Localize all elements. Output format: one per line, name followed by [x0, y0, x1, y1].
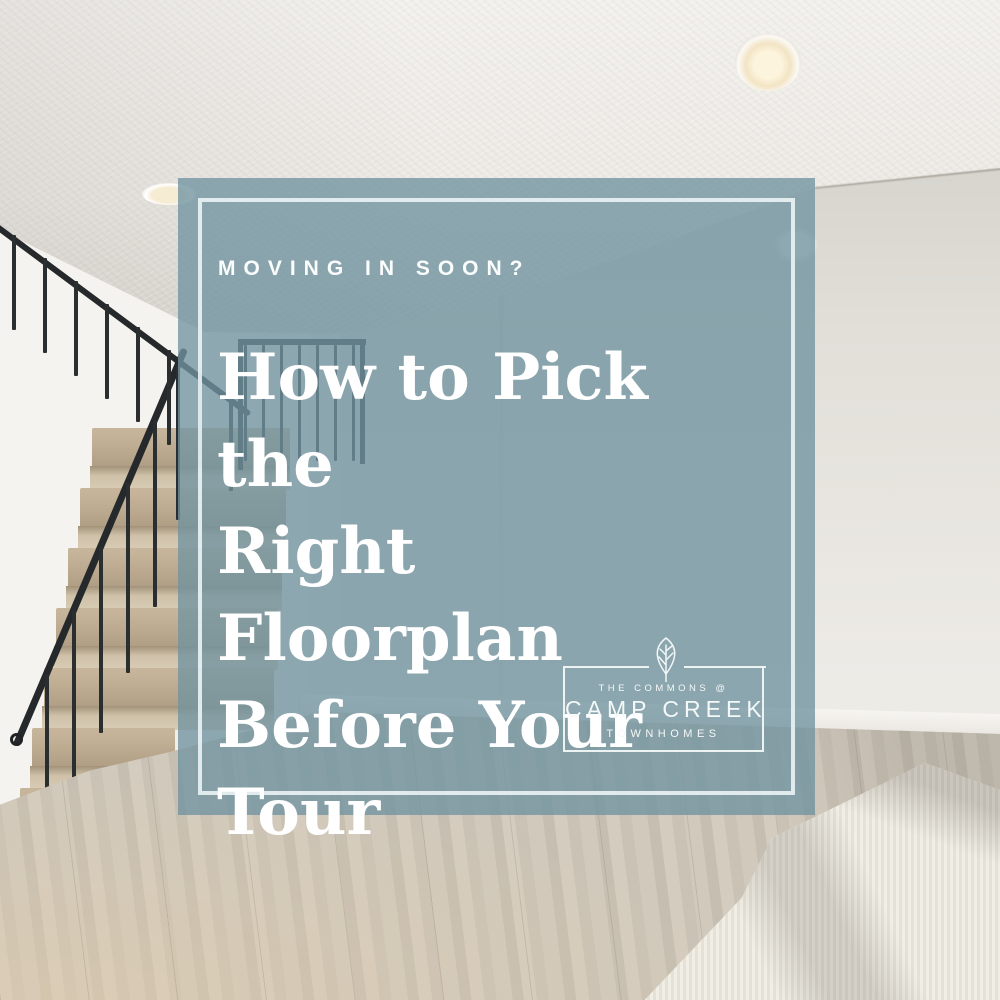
- headline-line-4: Tour: [217, 769, 777, 856]
- stair-baluster: [126, 483, 130, 673]
- logo-bottom-text: TOWNHOMES: [565, 728, 762, 740]
- social-graphic: MOVING IN SOON? How to Pick the Right Fl…: [0, 0, 1000, 1000]
- stair-baluster: [99, 547, 103, 733]
- logo-name-text: CAMP CREEK: [565, 696, 762, 723]
- headline: How to Pick the Right Floorplan Before Y…: [217, 334, 777, 856]
- overlay-panel: MOVING IN SOON? How to Pick the Right Fl…: [178, 178, 815, 815]
- stair-baluster: [74, 281, 78, 376]
- stair-baluster: [105, 304, 109, 399]
- stair-baluster: [136, 327, 140, 422]
- stair-baluster: [167, 350, 171, 445]
- leaf-tree-icon: [648, 636, 684, 682]
- eyebrow-text: MOVING IN SOON?: [218, 257, 531, 281]
- stair-baluster: [153, 420, 157, 607]
- logo-box: THE COMMONS @ CAMP CREEK TOWNHOMES: [563, 666, 764, 752]
- headline-line-2: Right Floorplan: [217, 508, 777, 682]
- logo-border-segment: [565, 666, 649, 668]
- stair-baluster: [12, 235, 16, 330]
- logo-border-segment: [684, 666, 766, 668]
- logo-top-text: THE COMMONS @: [565, 683, 762, 694]
- headline-line-1: How to Pick the: [217, 334, 777, 508]
- handrail-volute: [10, 733, 23, 746]
- recessed-light-right: [735, 33, 801, 91]
- right-wall: [815, 160, 1000, 740]
- stair-baluster: [72, 610, 76, 788]
- stair-baluster: [43, 258, 47, 353]
